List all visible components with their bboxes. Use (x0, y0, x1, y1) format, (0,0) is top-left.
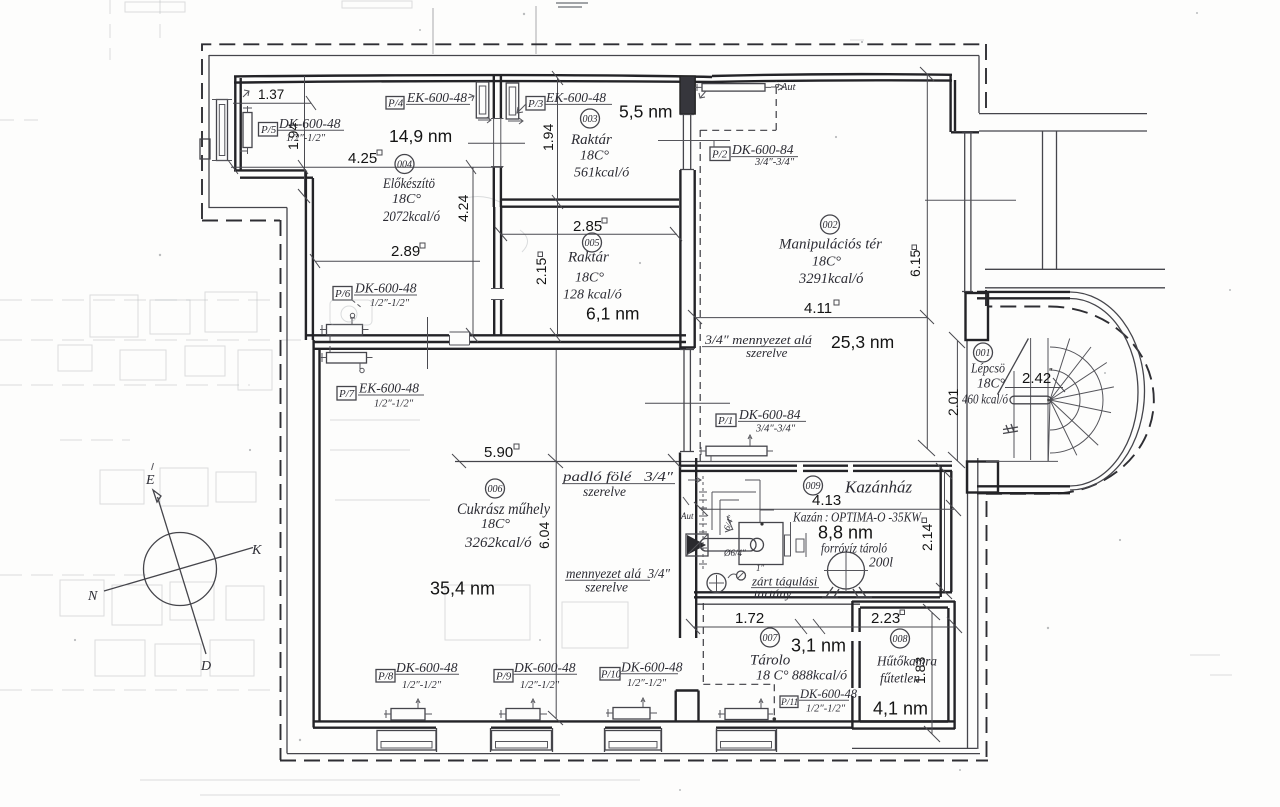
svg-text:P/4: P/4 (387, 98, 404, 110)
svg-text:P/5: P/5 (260, 124, 277, 136)
svg-text:Cukrász műhely: Cukrász műhely (457, 501, 551, 518)
svg-text:4.25: 4.25 (348, 150, 377, 167)
svg-text:14,9 nm: 14,9 nm (389, 126, 452, 146)
svg-text:fűtetlen: fűtetlen (880, 672, 920, 687)
svg-text:006: 006 (488, 484, 503, 495)
svg-text:1/2″-1/2″: 1/2″-1/2″ (520, 680, 560, 691)
svg-text:K: K (251, 543, 262, 558)
svg-text:2.14: 2.14 (919, 524, 935, 551)
svg-text:25,3 nm: 25,3 nm (831, 332, 894, 352)
svg-text:1/2″-1/2″: 1/2″-1/2″ (806, 704, 846, 715)
svg-text:2.01: 2.01 (945, 389, 961, 416)
svg-text:N: N (87, 589, 98, 604)
svg-text:128 kcal/ó: 128 kcal/ó (563, 288, 622, 303)
svg-text:6.04: 6.04 (536, 522, 552, 549)
svg-text:18C°: 18C° (580, 149, 609, 164)
svg-text:4,1 nm: 4,1 nm (873, 699, 928, 719)
svg-text:tartány: tartány (754, 586, 792, 601)
svg-text:P/6: P/6 (334, 288, 351, 300)
svg-text:Hűtőkamra: Hűtőkamra (876, 655, 937, 670)
svg-text:002: 002 (823, 220, 838, 231)
svg-text:18C°: 18C° (392, 192, 421, 207)
svg-text:200l: 200l (869, 555, 893, 570)
svg-text:padló fölé 3/4″: padló fölé 3/4″ (562, 469, 674, 484)
svg-text:5.90: 5.90 (484, 444, 513, 461)
svg-text:18C°: 18C° (812, 255, 841, 270)
svg-text:Előkészítö: Előkészítö (382, 176, 435, 192)
svg-text:3,1 nm: 3,1 nm (791, 636, 846, 656)
svg-text:DK-600-48: DK-600-48 (513, 660, 576, 675)
svg-text:008: 008 (893, 634, 908, 645)
svg-text:2.15: 2.15 (533, 258, 549, 285)
svg-text:009: 009 (806, 481, 821, 492)
svg-text:6,1 nm: 6,1 nm (586, 304, 640, 324)
svg-text:1/2″-1/2″: 1/2″-1/2″ (286, 133, 326, 144)
svg-text:18 C° 888kcal/ó: 18 C° 888kcal/ó (756, 669, 847, 684)
svg-text:P/2: P/2 (711, 149, 728, 161)
svg-text:szerelve: szerelve (583, 484, 626, 499)
svg-text:18C°: 18C° (977, 376, 1006, 391)
svg-text:3262kcal/ó: 3262kcal/ó (464, 535, 532, 551)
svg-text:DK-600-48: DK-600-48 (354, 281, 417, 296)
svg-text:P/8: P/8 (377, 671, 394, 683)
svg-text:4.11: 4.11 (804, 300, 832, 317)
svg-text:35,4 nm: 35,4 nm (430, 579, 495, 599)
svg-text:561kcal/ó: 561kcal/ó (574, 166, 629, 181)
svg-text:460 kcal/ó: 460 kcal/ó (962, 392, 1008, 407)
svg-text:DK-600-48: DK-600-48 (799, 687, 858, 701)
svg-text:DK-600-84: DK-600-84 (731, 142, 794, 157)
svg-text:3291kcal/ó: 3291kcal/ó (798, 271, 863, 287)
svg-text:P/1: P/1 (717, 415, 733, 427)
svg-text:003: 003 (583, 114, 598, 125)
svg-text:1/2″-1/2″: 1/2″-1/2″ (374, 399, 414, 410)
svg-text:2.42: 2.42 (1022, 370, 1051, 387)
svg-text:1/2″-1/2″: 1/2″-1/2″ (627, 678, 667, 689)
svg-text:1.37: 1.37 (258, 87, 284, 102)
svg-text:001: 001 (976, 348, 991, 359)
svg-text:P/3: P/3 (527, 98, 544, 110)
svg-text:1″: 1″ (756, 563, 765, 573)
svg-text:8,8 nm: 8,8 nm (818, 523, 873, 543)
svg-text:forróvíz tároló: forróvíz tároló (821, 541, 887, 556)
svg-text:EK-600-48: EK-600-48 (406, 90, 467, 105)
svg-text:Aut: Aut (680, 511, 694, 521)
svg-text:DK-600-84: DK-600-84 (738, 407, 801, 422)
svg-text:E: E (145, 473, 155, 488)
svg-text:007: 007 (763, 633, 779, 644)
svg-text:2.89: 2.89 (391, 243, 420, 260)
svg-text:4.24: 4.24 (455, 195, 471, 222)
svg-text:DK-600-48: DK-600-48 (278, 116, 341, 131)
svg-text:P/9: P/9 (495, 671, 512, 683)
svg-text:5,5 nm: 5,5 nm (619, 102, 673, 122)
svg-text:2.85: 2.85 (573, 218, 602, 235)
svg-text:18C°: 18C° (481, 517, 510, 532)
svg-text:Aut: Aut (780, 82, 797, 93)
svg-text:18C°: 18C° (575, 271, 604, 286)
svg-text:3/4″-3/4″: 3/4″-3/4″ (754, 157, 795, 168)
svg-text:1.94: 1.94 (540, 124, 556, 151)
svg-text:6/4″: 6/4″ (721, 514, 736, 532)
svg-text:EK-600-48: EK-600-48 (545, 90, 606, 105)
svg-text:Lépcsö: Lépcsö (970, 362, 1005, 377)
svg-text:1/2″-1/2″: 1/2″-1/2″ (370, 298, 410, 309)
svg-text:004: 004 (397, 160, 412, 171)
svg-text:2072kcal/ó: 2072kcal/ó (383, 209, 440, 225)
svg-text:6.15: 6.15 (907, 250, 923, 277)
svg-text:szerelve: szerelve (746, 345, 788, 360)
svg-text:005: 005 (585, 238, 600, 249)
svg-text:″: ″ (1049, 367, 1053, 378)
svg-text:szerelve: szerelve (585, 580, 628, 595)
svg-text:1.72: 1.72 (735, 610, 764, 627)
svg-text:P/7: P/7 (338, 388, 355, 400)
svg-text:Raktár: Raktár (570, 132, 612, 148)
svg-text:D: D (200, 659, 211, 674)
svg-text:Ø6/4″: Ø6/4″ (723, 548, 746, 558)
svg-text:P/11: P/11 (780, 698, 798, 708)
svg-text:3/4″-3/4″: 3/4″-3/4″ (755, 424, 796, 435)
svg-text:2.23: 2.23 (871, 610, 900, 627)
svg-text:P/10: P/10 (600, 670, 622, 681)
svg-text:DK-600-48: DK-600-48 (395, 660, 458, 675)
svg-text:Raktár: Raktár (567, 250, 609, 266)
svg-text:Tárolo: Tárolo (750, 653, 791, 669)
svg-text:Kazánház: Kazánház (844, 478, 912, 497)
svg-text:DK-600-48: DK-600-48 (620, 660, 683, 675)
svg-text:EK-600-48: EK-600-48 (358, 381, 419, 396)
svg-text:Manipulációs tér: Manipulációs tér (778, 237, 882, 253)
svg-text:1/2″-1/2″: 1/2″-1/2″ (402, 680, 442, 691)
